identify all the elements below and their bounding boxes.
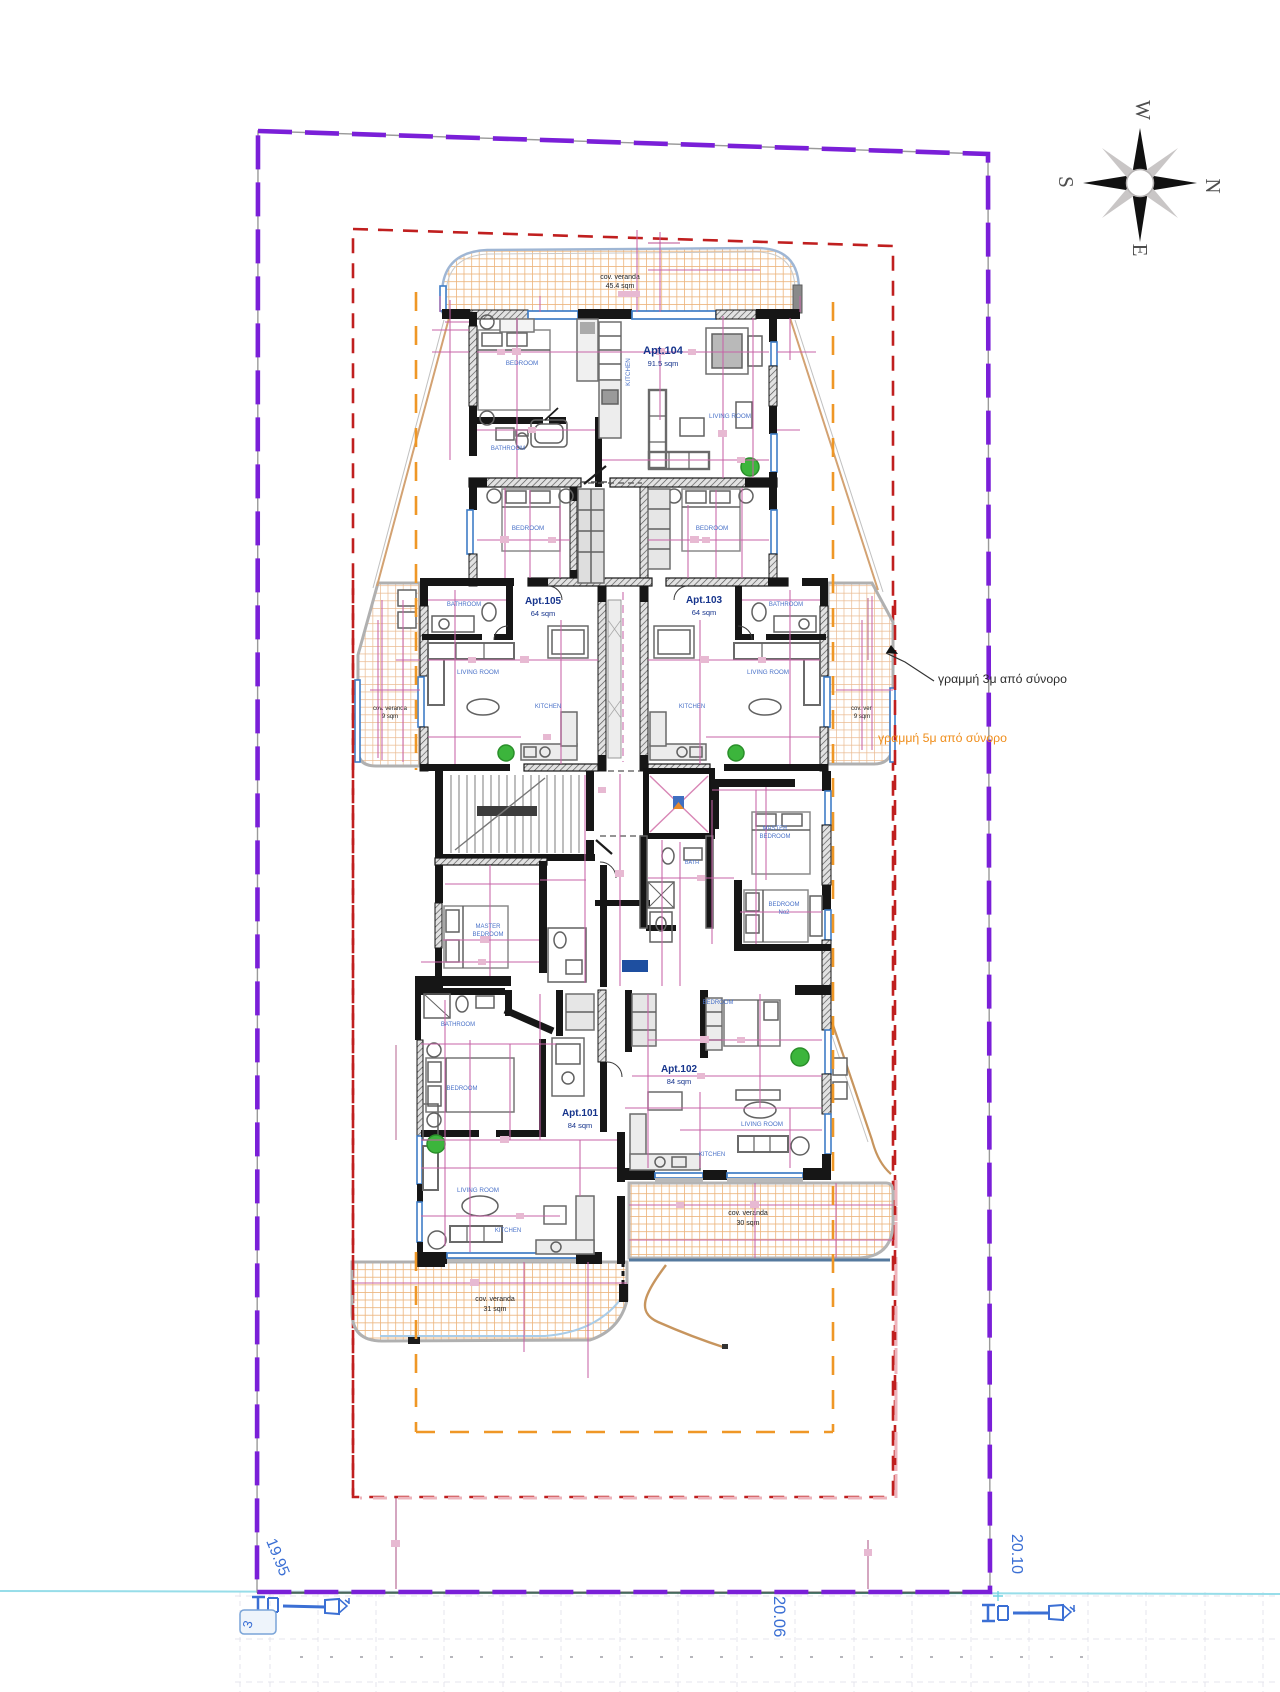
svg-text:BEDROOM: BEDROOM <box>768 902 799 908</box>
svg-text:BEDROOM: BEDROOM <box>702 1000 733 1006</box>
svg-text:BEDROOM: BEDROOM <box>506 360 539 367</box>
svg-text:MASTER: MASTER <box>762 826 788 832</box>
svg-text:64 sqm: 64 sqm <box>531 609 556 618</box>
svg-text:N: N <box>1201 178 1225 193</box>
svg-text:γραμμή 5μ από σύνορο: γραμμή 5μ από σύνορο <box>878 731 1007 745</box>
svg-text:84 sqm: 84 sqm <box>568 1121 593 1130</box>
svg-text:KITCHEN: KITCHEN <box>699 1152 725 1158</box>
svg-text:BEDROOM: BEDROOM <box>512 525 545 532</box>
svg-text:BEDROOM: BEDROOM <box>759 834 790 840</box>
svg-text:LIVING ROOM: LIVING ROOM <box>457 1187 499 1194</box>
svg-text:KITCHEN: KITCHEN <box>535 704 561 710</box>
svg-text:Apt.104: Apt.104 <box>643 345 684 357</box>
svg-text:BATHROOM: BATHROOM <box>491 446 525 452</box>
svg-text:BEDROOM: BEDROOM <box>472 932 503 938</box>
svg-text:LIVING ROOM: LIVING ROOM <box>747 669 789 676</box>
svg-text:BATHROOM: BATHROOM <box>441 1022 475 1028</box>
svg-text:20.10: 20.10 <box>1008 1534 1025 1574</box>
svg-text:E: E <box>1128 244 1152 257</box>
svg-text:Apt.105: Apt.105 <box>525 596 562 607</box>
svg-text:LIVING ROOM: LIVING ROOM <box>709 413 751 420</box>
svg-text:S: S <box>1054 176 1078 188</box>
svg-text:BEDROOM: BEDROOM <box>696 525 729 532</box>
svg-text:84 sqm: 84 sqm <box>667 1077 692 1086</box>
svg-text:Apt.103: Apt.103 <box>686 595 723 606</box>
svg-text:KITCHEN: KITCHEN <box>495 1228 521 1234</box>
svg-text:9 sqm: 9 sqm <box>382 714 398 720</box>
svg-text:45.4 sqm: 45.4 sqm <box>606 283 635 290</box>
svg-text:γραμμή 3μ από σύνορο: γραμμή 3μ από σύνορο <box>938 672 1067 686</box>
svg-text:BATHROOM: BATHROOM <box>447 602 481 608</box>
svg-text:W: W <box>1131 100 1155 120</box>
svg-text:cov. veranda: cov. veranda <box>475 1296 515 1303</box>
svg-text:BEDROOM: BEDROOM <box>446 1086 477 1092</box>
svg-text:30 sqm: 30 sqm <box>737 1220 760 1227</box>
svg-text:KITCHEN: KITCHEN <box>625 358 632 386</box>
svg-text:LIVING ROOM: LIVING ROOM <box>457 669 499 676</box>
svg-text:91.5 sqm: 91.5 sqm <box>648 359 679 368</box>
svg-text:BATHROOM: BATHROOM <box>769 602 803 608</box>
svg-text:No2: No2 <box>778 910 790 916</box>
svg-text:KITCHEN: KITCHEN <box>679 704 705 710</box>
svg-text:LIVING ROOM: LIVING ROOM <box>741 1121 783 1128</box>
svg-text:Apt.102: Apt.102 <box>661 1064 698 1075</box>
svg-text:Apt.101: Apt.101 <box>562 1108 599 1119</box>
svg-text:20.06: 20.06 <box>770 1596 788 1637</box>
svg-text:64 sqm: 64 sqm <box>692 608 717 617</box>
svg-text:cov. veranda: cov. veranda <box>728 1210 768 1217</box>
svg-text:31 sqm: 31 sqm <box>484 1306 507 1313</box>
svg-text:cov. veranda: cov. veranda <box>600 274 640 281</box>
svg-text:MASTER: MASTER <box>475 924 501 930</box>
svg-text:BATH: BATH <box>685 860 699 866</box>
